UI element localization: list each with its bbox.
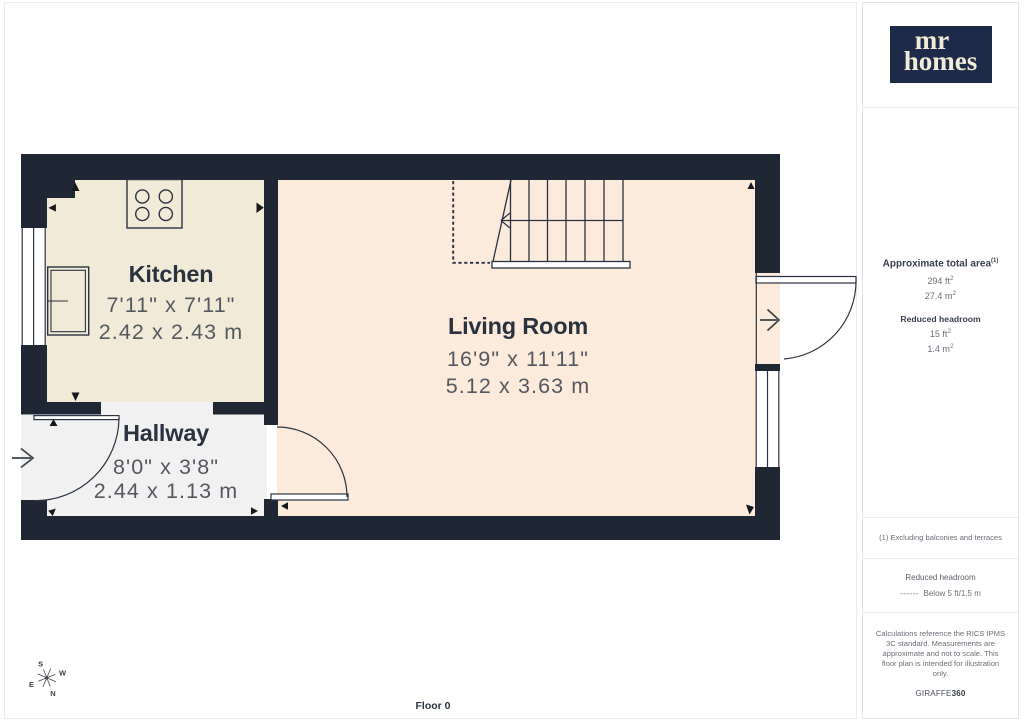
svg-text:N: N: [50, 689, 55, 698]
svg-text:W: W: [59, 669, 67, 678]
svg-text:S: S: [38, 659, 43, 668]
svg-text:E: E: [29, 680, 34, 689]
